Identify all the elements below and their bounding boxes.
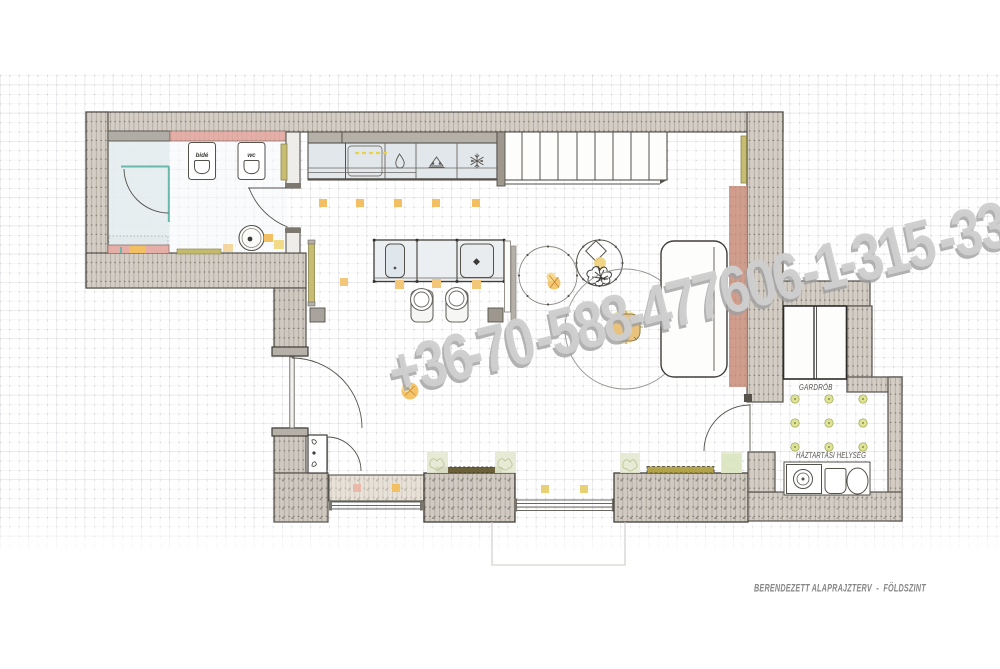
svg-text:BERENDEZETT ALAPRAJZTERV - F: BERENDEZETT ALAPRAJZTERV - FÖLDSZINT bbox=[754, 582, 927, 594]
svg-text:HÁZTARTÁSI HELYSÉG: HÁZTARTÁSI HELYSÉG bbox=[796, 450, 866, 460]
svg-text:bidé: bidé bbox=[196, 152, 209, 159]
svg-text:wc: wc bbox=[247, 152, 256, 159]
svg-text:GARDRÓB: GARDRÓB bbox=[799, 382, 833, 392]
